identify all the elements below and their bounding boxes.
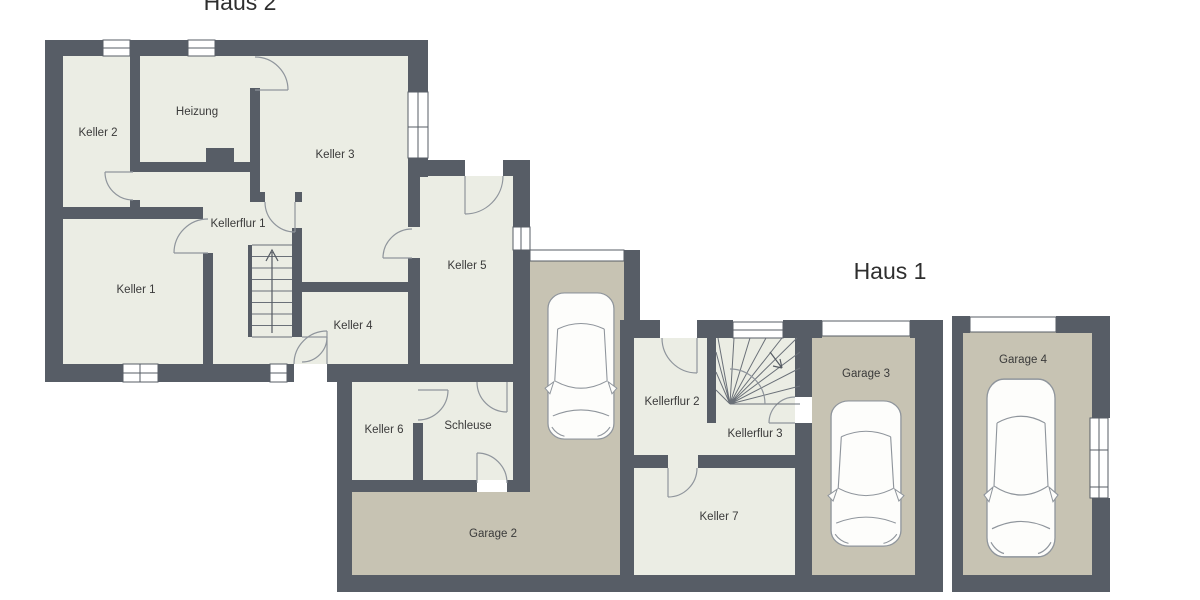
- car-icon: [545, 293, 617, 439]
- garage2-door-opening: [477, 480, 507, 492]
- window: [103, 40, 130, 56]
- garage4-gate: [970, 317, 1056, 332]
- window: [513, 227, 530, 250]
- room-label-keller3: Keller 3: [316, 149, 355, 161]
- garage2-gate: [530, 250, 624, 261]
- window: [123, 364, 158, 382]
- room-label-kellerflur3: Kellerflur 3: [728, 428, 783, 440]
- window: [733, 322, 783, 338]
- window: [1090, 418, 1108, 498]
- window: [408, 92, 428, 158]
- room-label-keller2: Keller 2: [79, 127, 118, 139]
- haus2-title: Haus 2: [204, 0, 277, 15]
- room-label-keller6: Keller 6: [365, 424, 404, 436]
- floor-plan-page: Haus 2 Haus 1 Keller 2 Heizung Keller 3 …: [0, 0, 1200, 600]
- floor-plan-svg: Haus 2 Haus 1 Keller 2 Heizung Keller 3 …: [0, 0, 1200, 600]
- car-icon: [828, 401, 904, 546]
- room-label-kellerflur2: Kellerflur 2: [645, 396, 700, 408]
- garage3-door-opening: [795, 397, 812, 423]
- room-label-heizung: Heizung: [176, 106, 218, 118]
- room-label-keller5: Keller 5: [448, 260, 487, 272]
- room-label-keller1: Keller 1: [117, 284, 156, 296]
- garage3-gate: [822, 321, 910, 336]
- room-label-garage3: Garage 3: [842, 368, 890, 380]
- annex-door-opening: [465, 160, 503, 176]
- car-icon: [984, 379, 1058, 557]
- room-label-kellerflur1: Kellerflur 1: [211, 218, 266, 230]
- kellerflur2-door-opening: [660, 320, 697, 338]
- entrance-door-opening: [294, 364, 327, 382]
- room-label-garage4: Garage 4: [999, 354, 1048, 366]
- haus1-title: Haus 1: [854, 258, 927, 284]
- window: [270, 364, 287, 382]
- room-label-schleuse: Schleuse: [444, 420, 491, 432]
- window: [188, 40, 215, 56]
- room-label-keller4: Keller 4: [334, 320, 374, 332]
- room-label-keller7: Keller 7: [700, 511, 739, 523]
- room-label-garage2: Garage 2: [469, 528, 517, 540]
